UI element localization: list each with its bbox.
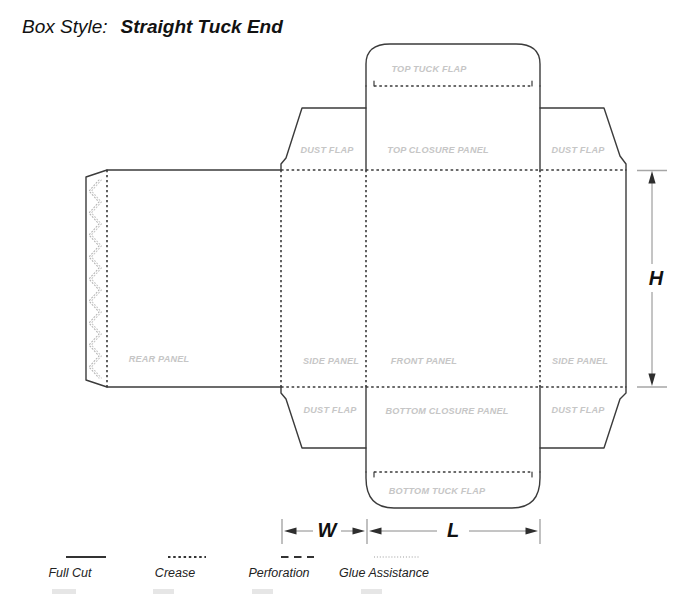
dieline-diagram: Box Style:Straight Tuck End — [0, 0, 700, 596]
dimension-h-label: H — [649, 267, 663, 290]
label-top-tuck-flap: TOP TUCK FLAP — [392, 63, 467, 74]
legend-label-perforation: Perforation — [248, 566, 309, 580]
label-dust-flap-top-left: DUST FLAP — [301, 144, 354, 155]
dimension-l-label: L — [447, 519, 459, 542]
bottom-edge-artifacts — [52, 589, 382, 594]
dust-flap-bottom-right-outline — [540, 387, 626, 448]
label-dust-flap-bottom-right: DUST FLAP — [552, 404, 605, 415]
label-bottom-closure-panel: BOTTOM CLOSURE PANEL — [385, 405, 508, 416]
label-bottom-tuck-flap: BOTTOM TUCK FLAP — [389, 485, 486, 496]
tuck-notches — [374, 81, 532, 477]
dust-flap-top-left-outline — [281, 108, 366, 170]
label-top-closure-panel: TOP CLOSURE PANEL — [387, 144, 488, 155]
dieline-drawing — [0, 0, 700, 596]
label-side-panel-right: SIDE PANEL — [552, 355, 608, 366]
legend-label-glue-assistance: Glue Assistance — [339, 566, 429, 580]
dust-flap-top-right-outline — [540, 108, 626, 170]
label-dust-flap-bottom-left: DUST FLAP — [304, 404, 357, 415]
dust-flap-bottom-left-outline — [281, 387, 366, 448]
label-front-panel: FRONT PANEL — [391, 355, 457, 366]
label-rear-panel: REAR PANEL — [129, 353, 190, 364]
label-dust-flap-top-right: DUST FLAP — [552, 144, 605, 155]
cut-lines — [86, 44, 626, 508]
label-side-panel-left: SIDE PANEL — [303, 355, 359, 366]
legend-label-crease: Crease — [155, 566, 195, 580]
glue-assistance-zigzag — [89, 180, 101, 378]
dimension-w-label: W — [318, 519, 337, 542]
legend-label-full-cut: Full Cut — [48, 566, 91, 580]
